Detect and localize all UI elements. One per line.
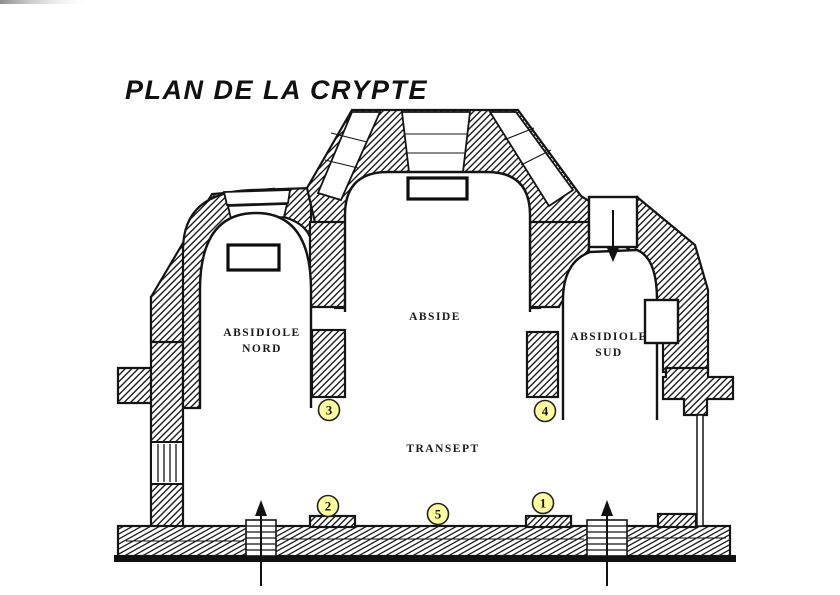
- marker-1: 1: [533, 493, 554, 514]
- label-absidiole-sud-line1: ABSIDIOLE: [570, 331, 647, 343]
- marker-5: 5: [428, 504, 449, 525]
- marker-3: 3: [319, 400, 340, 421]
- north-apsidiole-interior: [200, 213, 311, 408]
- crypt-plan-figure: 3 4 2 5 1 PLAN DE LA CRYPTE ABSIDIOLE NO…: [0, 0, 840, 595]
- label-absidiole-sud-line2: SUD: [595, 347, 623, 359]
- column-base-2: [310, 516, 355, 527]
- north-arch-stone-1: [224, 190, 290, 205]
- south-wall-base-line: [114, 555, 736, 562]
- column-base-east: [658, 514, 696, 527]
- marker-3-number: 3: [326, 403, 333, 418]
- apse-keystone-band: [402, 112, 470, 172]
- scan-artifact: [0, 0, 95, 4]
- north-apsidiole-altar: [228, 245, 279, 270]
- north-pier: [310, 222, 346, 307]
- label-absidiole-nord-line1: ABSIDIOLE: [223, 327, 300, 339]
- label-absidiole-nord-line2: NORD: [242, 343, 282, 355]
- marker-2: 2: [318, 496, 339, 517]
- marker-5-number: 5: [435, 507, 442, 522]
- crypt-plan-drawing: 3 4 2 5 1 PLAN DE LA CRYPTE ABSIDIOLE NO…: [0, 0, 840, 595]
- label-abside: ABSIDE: [409, 311, 461, 323]
- marker-4-number: 4: [542, 404, 549, 419]
- label-transept: TRANSEPT: [406, 443, 479, 455]
- east-boundary-double-line: [697, 415, 703, 526]
- apse-altar: [408, 178, 467, 199]
- marker-1-number: 1: [540, 496, 547, 511]
- column-base-1: [526, 516, 571, 527]
- southeast-cross-pier: [663, 368, 733, 415]
- pillar-south: [527, 332, 558, 397]
- south-wall-niche: [645, 300, 678, 343]
- marker-4: 4: [535, 401, 556, 422]
- marker-2-number: 2: [325, 499, 332, 514]
- west-buttress-wall: [118, 368, 153, 403]
- west-wall-embrasure: [151, 442, 183, 484]
- page-title: PLAN DE LA CRYPTE: [125, 75, 428, 105]
- pillar-north: [312, 330, 345, 397]
